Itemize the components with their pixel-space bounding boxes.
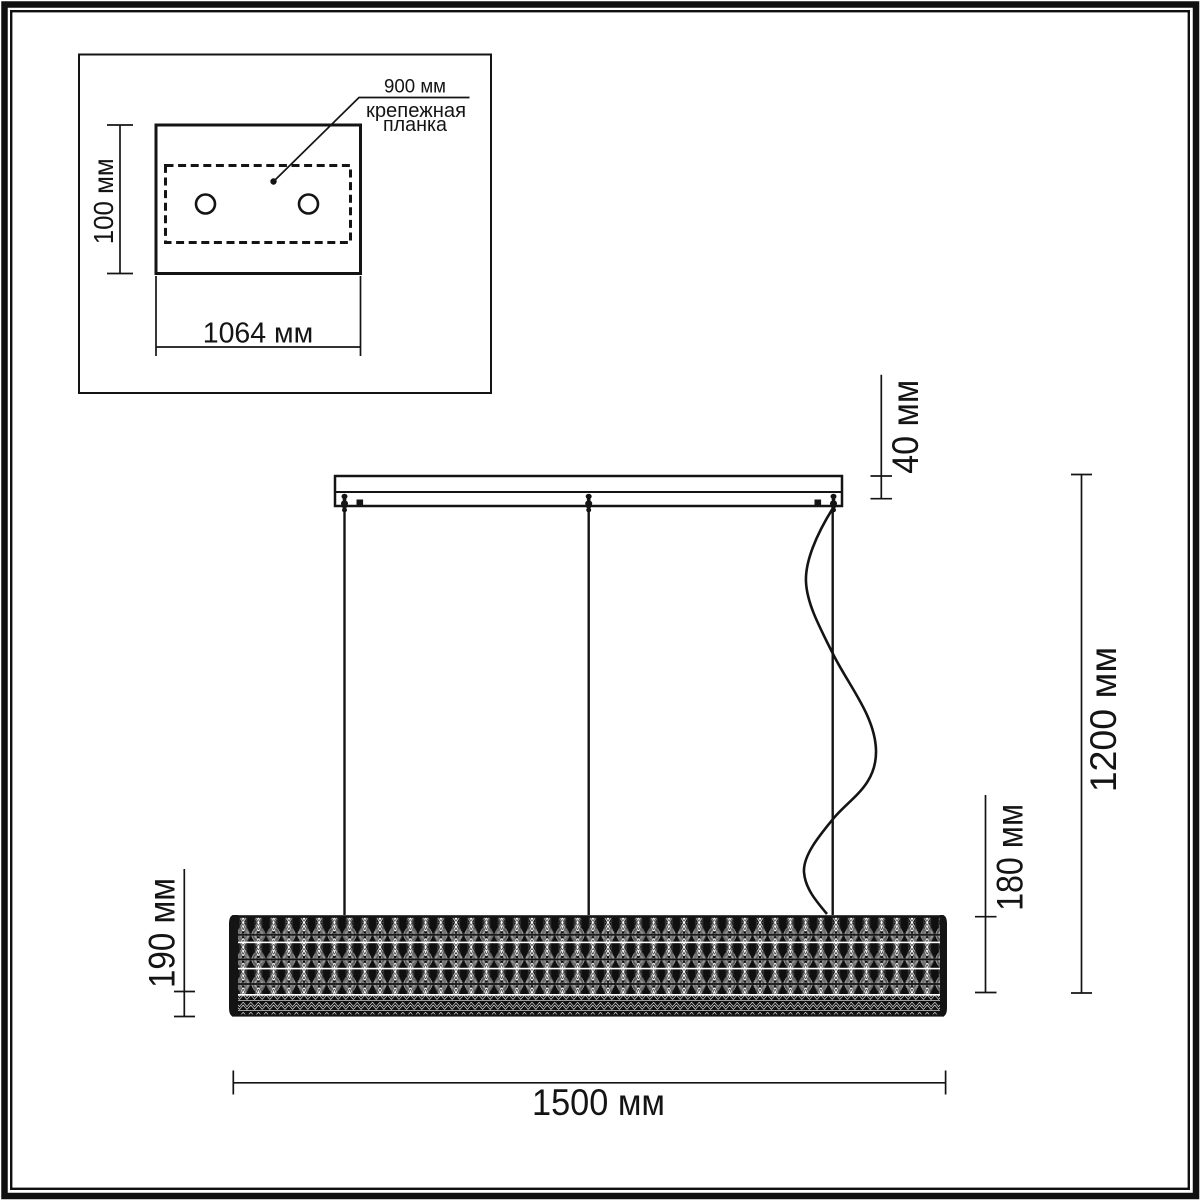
svg-text:190 мм: 190 мм [141,878,183,988]
svg-text:планка: планка [383,114,448,136]
svg-text:100 мм: 100 мм [88,158,119,244]
svg-text:180 мм: 180 мм [989,804,1031,911]
svg-text:1500 мм: 1500 мм [532,1081,665,1123]
svg-text:900 мм: 900 мм [384,76,446,98]
svg-text:40 мм: 40 мм [884,380,926,474]
svg-text:1064 мм: 1064 мм [203,318,314,350]
svg-text:1200 мм: 1200 мм [1082,647,1124,792]
